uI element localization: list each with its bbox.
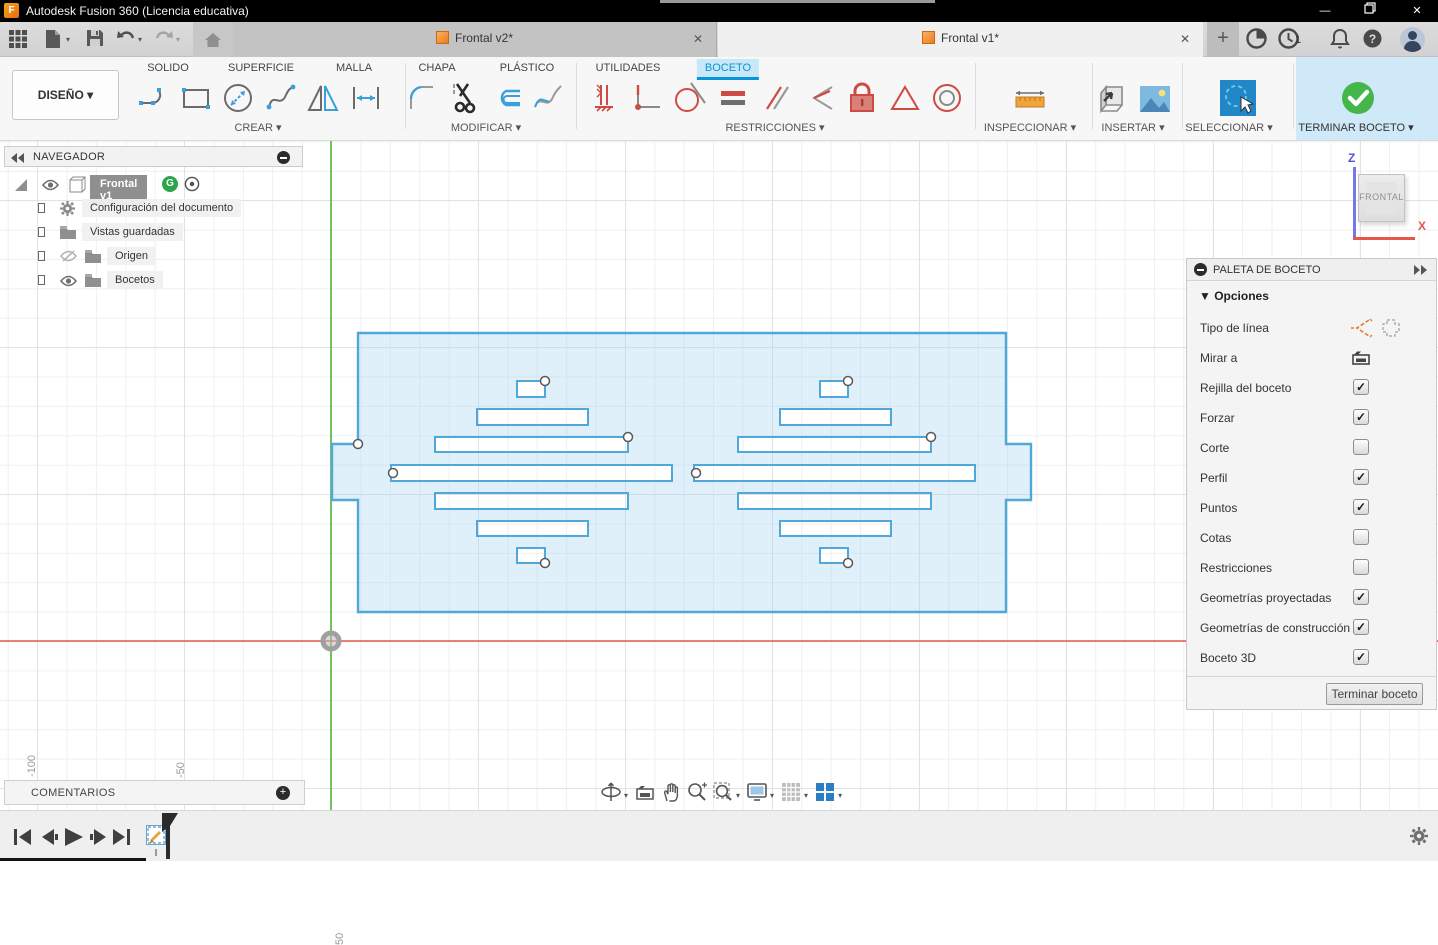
palette-row-8[interactable]: Restricciones <box>1187 553 1436 583</box>
timeline-tick <box>155 849 157 856</box>
checkbox-checked[interactable]: ✓ <box>1353 619 1369 635</box>
grounded-badge[interactable]: G <box>162 176 178 192</box>
workspace-label: DISEÑO <box>38 88 84 102</box>
caret-down-icon: ▾ <box>819 122 825 134</box>
palette-row-10[interactable]: Geometrías de construcción✓ <box>1187 613 1436 643</box>
undo-button[interactable] <box>116 29 138 51</box>
group-label-restricciones[interactable]: RESTRICCIONES ▾ <box>725 121 824 134</box>
tree-item-label[interactable]: Vistas guardadas <box>82 223 183 241</box>
palette-row-6[interactable]: Puntos✓ <box>1187 493 1436 523</box>
new-tab-button[interactable]: + <box>1207 22 1239 57</box>
palette-row-7[interactable]: Cotas <box>1187 523 1436 553</box>
sketch-slot[interactable] <box>780 409 891 425</box>
angle-constraint-button[interactable] <box>802 81 838 117</box>
sketch-palette-title: PALETA DE BOCETO <box>1213 264 1321 276</box>
checkbox-unchecked[interactable] <box>1353 439 1369 455</box>
tab-label-wrap: Frontal v1* <box>718 31 1203 45</box>
axis-x-label: X <box>1418 219 1426 233</box>
folder-icon <box>85 274 101 287</box>
checkbox-unchecked[interactable] <box>1353 559 1369 575</box>
fillet-tool-icon <box>407 81 441 115</box>
palette-row-5[interactable]: Perfil✓ <box>1187 463 1436 493</box>
group-label-inspeccionar[interactable]: INSPECCIONAR ▾ <box>984 121 1076 134</box>
caret-down-icon: ▾ <box>516 122 522 134</box>
collapse-double-left-icon[interactable] <box>11 153 25 163</box>
pan-hand-icon[interactable] <box>660 781 682 803</box>
ribbon-tab-superficie[interactable]: SUPERFICIE <box>220 59 302 77</box>
group-label-crear[interactable]: CREAR ▾ <box>234 121 281 134</box>
palette-row-label: Perfil <box>1200 471 1227 485</box>
group-text: INSPECCIONAR <box>984 122 1068 134</box>
checkbox-checked[interactable]: ✓ <box>1353 469 1369 485</box>
lock-icon <box>845 81 879 115</box>
restore-icon <box>1364 2 1376 14</box>
group-label-modificar[interactable]: MODIFICAR ▾ <box>451 121 521 134</box>
checkbox-checked[interactable]: ✓ <box>1353 379 1369 395</box>
alerts-bell-button[interactable] <box>1330 28 1352 50</box>
palette-row-label: Cotas <box>1200 531 1231 545</box>
scissors-icon <box>448 81 482 115</box>
avatar-head <box>1408 31 1417 40</box>
spline-tool-icon <box>264 81 298 115</box>
ribbon-tab-malla[interactable]: MALLA <box>328 59 380 77</box>
finish-sketch-button[interactable]: Terminar boceto <box>1326 683 1423 705</box>
palette-row-3[interactable]: Forzar✓ <box>1187 403 1436 433</box>
folder-icon <box>85 250 101 263</box>
group-text: TERMINAR BOCETO <box>1298 122 1405 134</box>
spline-tool-button[interactable] <box>264 81 300 117</box>
home-view-button[interactable] <box>193 22 233 57</box>
caret-down-icon: ▾ <box>87 88 93 102</box>
home-icon <box>204 32 222 48</box>
orbit-tool-icon[interactable] <box>600 781 622 803</box>
ribbon-divider <box>975 63 976 129</box>
equal-constraint-icon <box>716 81 750 115</box>
orbit-caret-icon[interactable]: ▾ <box>624 791 628 800</box>
circle-tool-button[interactable] <box>221 81 257 117</box>
sketch-slot[interactable] <box>435 437 628 452</box>
group-text: MODIFICAR <box>451 122 513 134</box>
dimension-tool-button[interactable] <box>349 81 385 117</box>
caret-down-icon: ▾ <box>1408 122 1414 134</box>
ribbon-divider <box>1182 63 1183 129</box>
file-icon <box>44 29 62 49</box>
job-status-button[interactable] <box>1246 28 1268 50</box>
sketch-profile-fill[interactable] <box>332 333 1031 612</box>
browser-title: NAVEGADOR <box>33 151 105 163</box>
group-label-seleccionar[interactable]: SELECCIONAR ▾ <box>1185 121 1272 134</box>
ribbon-tab-plastico[interactable]: PLÁSTICO <box>492 59 562 77</box>
caret-down-icon: ▾ <box>1159 122 1165 134</box>
document-cube-icon <box>436 31 449 44</box>
offset-tool-button[interactable] <box>490 81 526 117</box>
ribbon-tab-utilidades[interactable]: UTILIDADES <box>588 59 669 77</box>
caret-down-icon: ▾ <box>276 122 282 134</box>
tree-item-label[interactable]: Bocetos <box>107 271 163 289</box>
context-arrow-icon[interactable] <box>14 178 28 192</box>
line-tool-button[interactable] <box>137 81 173 117</box>
ruler-label-minus100: -100 <box>26 755 38 777</box>
sketch-origin-point[interactable] <box>323 633 339 649</box>
sketch-point[interactable] <box>844 559 853 568</box>
group-text: RESTRICCIONES <box>725 122 815 134</box>
coincident-constraint-icon <box>587 81 621 115</box>
svg-text:?: ? <box>1369 32 1376 46</box>
concentric-icon <box>930 81 964 115</box>
quick-access-toolbar: ▾ ▾ ▾ Frontal v2* ✕ Frontal v1* ✕ + 1 ? <box>0 22 1438 57</box>
sketch-point[interactable] <box>927 433 936 442</box>
triangle-icon <box>888 81 922 115</box>
job-status-icon <box>1246 28 1267 49</box>
sketch-slot[interactable] <box>738 493 931 509</box>
grid-settings-icon[interactable] <box>780 781 802 803</box>
line-type-icon[interactable] <box>1349 317 1373 339</box>
save-icon <box>86 29 104 47</box>
timeline-settings-gear-icon[interactable] <box>1410 827 1428 845</box>
select-tool-button[interactable] <box>1219 79 1255 115</box>
look-at-icon[interactable] <box>634 781 656 803</box>
group-text: SELECCIONAR <box>1185 122 1264 134</box>
palette-row-label: Boceto 3D <box>1200 651 1256 665</box>
group-label-terminar-boceto[interactable]: TERMINAR BOCETO ▾ <box>1298 121 1413 134</box>
tab-close-icon[interactable]: ✕ <box>1177 31 1193 47</box>
sketch-point[interactable] <box>692 469 701 478</box>
rectangle-tool-button[interactable] <box>179 81 215 117</box>
visibility-eye-icon[interactable] <box>42 179 59 191</box>
palette-row-11[interactable]: Boceto 3D✓ <box>1187 643 1436 673</box>
ribbon-divider <box>405 63 406 129</box>
tree-item-label[interactable]: Configuración del documento <box>82 199 241 217</box>
options-section-header[interactable]: ▼ Opciones <box>1199 289 1269 303</box>
expand-arrow-icon[interactable] <box>38 251 45 261</box>
perpendicular-constraint-icon <box>630 81 664 115</box>
line-tool-icon <box>137 81 171 115</box>
minimize-button[interactable]: — <box>1308 0 1342 22</box>
measure-tool-button[interactable] <box>1012 81 1048 117</box>
look-at-icon[interactable] <box>1351 348 1373 368</box>
display-settings-icon[interactable] <box>746 781 768 803</box>
sketch-point[interactable] <box>541 377 550 386</box>
dimension-tool-icon <box>349 81 383 115</box>
undo-icon <box>116 29 136 47</box>
file-menu-button[interactable] <box>44 29 66 51</box>
navigation-toolbar: ▾ ▾ ▾ ▾ ▾ <box>600 779 844 805</box>
activate-radio-icon[interactable] <box>184 176 200 192</box>
checkbox-unchecked[interactable] <box>1353 529 1369 545</box>
timeline-step-back-button[interactable] <box>38 827 60 847</box>
close-button[interactable]: ✕ <box>1400 0 1434 22</box>
top-gray-strip <box>660 0 935 3</box>
ribbon-divider <box>1293 63 1294 129</box>
tangent-constraint-button[interactable] <box>673 81 709 117</box>
palette-row-9[interactable]: Geometrías proyectadas✓ <box>1187 583 1436 613</box>
zoom-window-caret-icon[interactable]: ▾ <box>736 791 740 800</box>
sketch-slot[interactable] <box>391 465 672 481</box>
zoom-window-icon[interactable] <box>712 781 734 803</box>
ruler-label-minus50: -50 <box>175 762 187 778</box>
palette-row-label: Puntos <box>1200 501 1237 515</box>
grid-menu-icon <box>8 29 28 49</box>
insert-derive-button[interactable] <box>1094 81 1130 117</box>
palette-row-label: Tipo de línea <box>1200 321 1269 335</box>
ribbon-divider <box>1092 63 1093 129</box>
help-icon: ? <box>1362 28 1383 49</box>
document-tab-frontal-v2[interactable]: Frontal v2* ✕ <box>233 22 717 57</box>
polygon-constraint-button[interactable] <box>888 81 924 117</box>
checkbox-checked[interactable]: ✓ <box>1353 409 1369 425</box>
sketch-slot[interactable] <box>780 521 891 536</box>
timeline-step-forward-button[interactable] <box>88 827 110 847</box>
axis-z-line <box>1353 167 1356 239</box>
timeline-bar <box>0 810 1438 861</box>
gear-icon <box>60 201 75 216</box>
sketch-point[interactable] <box>354 440 363 449</box>
options-section-label: Opciones <box>1214 289 1269 303</box>
visibility-off-eye-icon[interactable] <box>60 249 77 263</box>
concentric-constraint-button[interactable] <box>930 81 966 117</box>
user-avatar[interactable] <box>1400 27 1425 52</box>
palette-row-label: Corte <box>1200 441 1229 455</box>
palette-row-label: Forzar <box>1200 411 1235 425</box>
tangent-constraint-icon <box>673 81 707 115</box>
circle-tool-icon <box>221 81 255 115</box>
workspace-selector-button[interactable]: DISEÑO ▾ <box>12 70 119 120</box>
angle-constraint-icon <box>802 81 836 115</box>
document-tab-label: Frontal v2* <box>455 31 513 45</box>
comments-panel[interactable]: COMENTARIOS + <box>4 780 305 805</box>
document-tab-frontal-v1[interactable]: Frontal v1* ✕ <box>718 22 1203 57</box>
panel-collapse-icon[interactable] <box>1194 263 1207 276</box>
ribbon-tab-chapa[interactable]: CHAPA <box>410 59 463 77</box>
palette-row-4[interactable]: Corte <box>1187 433 1436 463</box>
palette-row-0[interactable]: Tipo de línea <box>1187 313 1436 343</box>
palette-row-1[interactable]: Mirar a <box>1187 343 1436 373</box>
timeline-play-button[interactable] <box>60 827 86 847</box>
restore-button[interactable] <box>1353 0 1387 22</box>
group-label-insertar[interactable]: INSERTAR ▾ <box>1101 121 1164 134</box>
image-icon <box>1137 81 1173 117</box>
axis-z-label: Z <box>1348 151 1355 165</box>
coincident-constraint-button[interactable] <box>587 81 623 117</box>
palette-row-label: Mirar a <box>1200 351 1237 365</box>
finish-sketch-check-icon <box>1339 79 1377 117</box>
expand-arrow-icon[interactable] <box>38 275 45 285</box>
tab-label-wrap: Frontal v2* <box>233 31 716 45</box>
fillet-tool-button[interactable] <box>407 81 443 117</box>
mirror-tool-button[interactable] <box>306 81 342 117</box>
notification-count: 1 <box>1295 34 1301 46</box>
expand-arrow-icon[interactable] <box>38 203 45 213</box>
sketch-slot[interactable] <box>477 409 588 425</box>
panel-collapse-icon[interactable] <box>277 151 290 164</box>
group-text: CREAR <box>234 122 273 134</box>
component-cube-icon <box>68 176 86 194</box>
select-tool-icon <box>1219 79 1257 117</box>
caret-down-icon: ▾ <box>1267 122 1273 134</box>
expand-arrow-icon[interactable] <box>38 227 45 237</box>
timeline-skip-start-button[interactable] <box>12 827 34 847</box>
finish-sketch-ribbon-button[interactable] <box>1339 79 1375 115</box>
palette-divider <box>1187 676 1436 677</box>
visibility-eye-icon[interactable] <box>60 275 77 287</box>
view-cube-face[interactable]: FRONTAL <box>1358 174 1405 222</box>
viewports-caret-icon[interactable]: ▾ <box>838 791 842 800</box>
view-cube[interactable]: Z X FRONTAL <box>1330 145 1438 245</box>
palette-row-2[interactable]: Rejilla del boceto✓ <box>1187 373 1436 403</box>
parallel-constraint-icon <box>759 81 793 115</box>
sketch-point[interactable] <box>541 559 550 568</box>
edit-spline-icon <box>531 81 565 115</box>
ribbon-toolbar: DISEÑO ▾ SOLIDO SUPERFICIE MALLA CHAPA P… <box>0 57 1438 141</box>
redo-icon <box>154 29 174 47</box>
sketch-point[interactable] <box>624 433 633 442</box>
palette-row-label: Geometrías de construcción <box>1200 621 1350 635</box>
help-button[interactable]: ? <box>1362 28 1384 50</box>
measure-ruler-icon <box>1012 81 1048 115</box>
add-comment-icon[interactable]: + <box>276 786 290 800</box>
sketch-point[interactable] <box>389 469 398 478</box>
palette-row-label: Rejilla del boceto <box>1200 381 1291 395</box>
viewports-icon[interactable] <box>814 781 836 803</box>
ribbon-divider <box>576 63 577 129</box>
perpendicular-constraint-button[interactable] <box>630 81 666 117</box>
lock-constraint-button[interactable] <box>845 81 881 117</box>
tree-item-label[interactable]: Origen <box>107 247 156 265</box>
zoom-icon[interactable] <box>686 781 708 803</box>
mirror-tool-icon <box>306 81 340 115</box>
file-menu-caret[interactable]: ▾ <box>66 35 70 44</box>
timeline-skip-end-button[interactable] <box>110 827 132 847</box>
checkbox-checked[interactable]: ✓ <box>1353 649 1369 665</box>
rectangle-tool-icon <box>179 81 213 115</box>
sketch-slot[interactable] <box>477 521 588 536</box>
browser-header[interactable]: NAVEGADOR <box>4 146 303 167</box>
insert-derive-icon <box>1094 81 1130 117</box>
offset-tool-icon <box>490 81 524 115</box>
construction-type-icon[interactable] <box>1381 318 1401 338</box>
timeline-position-flag[interactable] <box>162 813 178 832</box>
axis-x-line <box>1353 237 1415 240</box>
display-settings-caret-icon[interactable]: ▾ <box>770 791 774 800</box>
app-grid-menu-button[interactable] <box>8 29 30 51</box>
insert-image-button[interactable] <box>1137 81 1173 117</box>
undo-caret[interactable]: ▾ <box>138 35 142 44</box>
ribbon-tab-boceto[interactable]: BOCETO <box>697 59 759 77</box>
sketch-point[interactable] <box>844 377 853 386</box>
tab-close-icon[interactable]: ✕ <box>690 31 706 47</box>
document-cube-icon <box>922 31 935 44</box>
checkbox-checked[interactable]: ✓ <box>1353 589 1369 605</box>
sketch-slot[interactable] <box>435 493 628 509</box>
comments-title: COMENTARIOS <box>31 787 115 799</box>
bell-icon <box>1330 28 1350 49</box>
sketch-palette-panel: PALETA DE BOCETO ▼ Opciones Tipo de líne… <box>1186 258 1437 710</box>
sketch-slot[interactable] <box>694 465 975 481</box>
group-text: INSERTAR <box>1101 122 1156 134</box>
palette-row-label: Restricciones <box>1200 561 1272 575</box>
save-button[interactable] <box>86 29 108 51</box>
folder-icon <box>60 226 76 239</box>
checkbox-checked[interactable]: ✓ <box>1353 499 1369 515</box>
ruler-label-50: 50 <box>334 933 346 945</box>
window-title: Autodesk Fusion 360 (Licencia educativa) <box>26 4 249 18</box>
ribbon-tab-solido[interactable]: SOLIDO <box>139 59 197 77</box>
fusion-app-icon: F <box>4 3 19 18</box>
redo-button[interactable] <box>154 29 176 51</box>
palette-row-label: Geometrías proyectadas <box>1200 591 1331 605</box>
trim-tool-button[interactable] <box>448 81 484 117</box>
view-cube-face-label: FRONTAL <box>1359 192 1404 202</box>
expand-double-right-icon[interactable] <box>1414 265 1428 275</box>
caret-down-icon: ▾ <box>1071 122 1077 134</box>
avatar-body <box>1404 41 1421 52</box>
parallel-constraint-button[interactable] <box>759 81 795 117</box>
redo-caret[interactable]: ▾ <box>176 35 180 44</box>
equal-constraint-button[interactable] <box>716 81 752 117</box>
sketch-palette-header[interactable]: PALETA DE BOCETO <box>1187 259 1436 281</box>
edit-spline-tool-button[interactable] <box>531 81 567 117</box>
title-bar: F Autodesk Fusion 360 (Licencia educativ… <box>0 0 1438 22</box>
document-tab-label: Frontal v1* <box>941 31 999 45</box>
sketch-slot[interactable] <box>738 437 931 452</box>
grid-settings-caret-icon[interactable]: ▾ <box>804 791 808 800</box>
